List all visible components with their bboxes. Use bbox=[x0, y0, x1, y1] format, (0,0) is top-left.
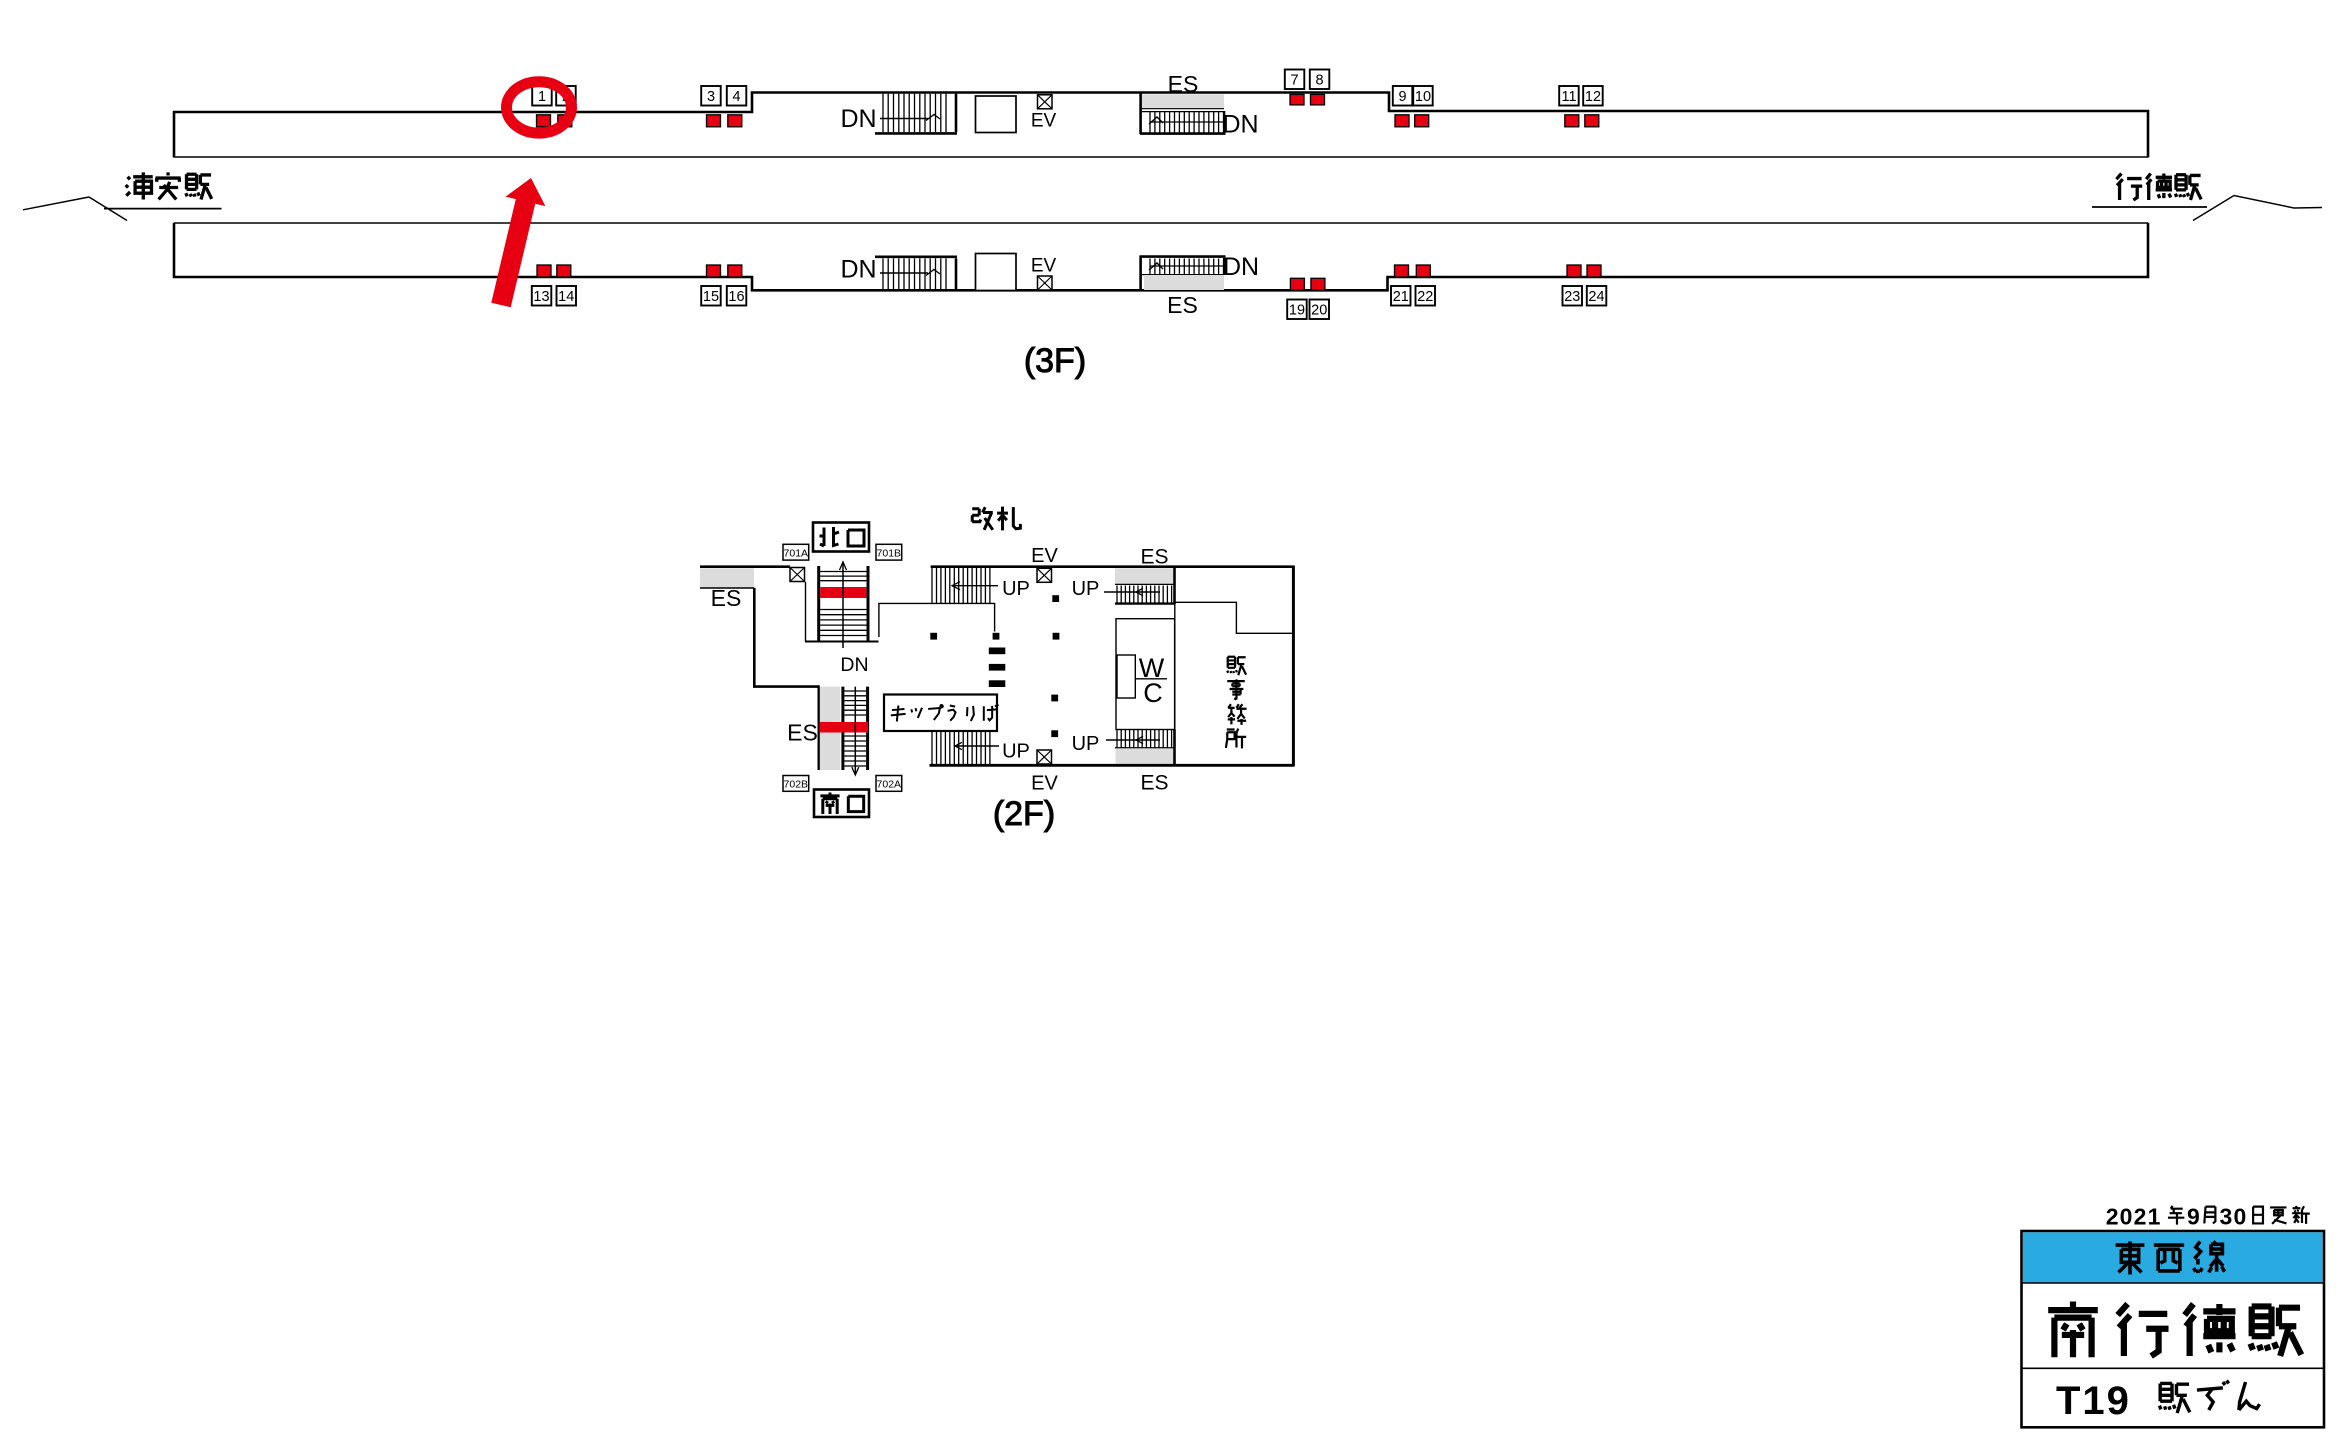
svg-text:702A: 702A bbox=[877, 779, 902, 791]
svg-text:EV: EV bbox=[1031, 773, 1058, 795]
svg-text:ES: ES bbox=[1167, 292, 1198, 318]
svg-text:DN: DN bbox=[1223, 253, 1259, 281]
svg-text:UP: UP bbox=[1002, 741, 1030, 763]
svg-text:EV: EV bbox=[1031, 111, 1057, 132]
svg-text:21: 21 bbox=[1393, 289, 1409, 305]
svg-text:ES: ES bbox=[1140, 546, 1168, 569]
svg-text:9: 9 bbox=[2187, 1204, 2200, 1230]
svg-text:22: 22 bbox=[1417, 289, 1433, 305]
svg-text:(3F): (3F) bbox=[1024, 342, 1086, 380]
svg-text:1: 1 bbox=[538, 89, 546, 105]
svg-text:8: 8 bbox=[1315, 72, 1323, 88]
svg-text:10: 10 bbox=[1415, 89, 1431, 105]
svg-text:ES: ES bbox=[711, 585, 742, 611]
svg-text:7: 7 bbox=[1290, 72, 1298, 88]
svg-text:EV: EV bbox=[1031, 545, 1058, 567]
svg-text:701A: 701A bbox=[784, 548, 809, 560]
svg-text:ES: ES bbox=[1140, 772, 1168, 795]
svg-text:9: 9 bbox=[1398, 89, 1406, 105]
svg-text:11: 11 bbox=[1561, 89, 1576, 105]
svg-text:4: 4 bbox=[732, 89, 740, 105]
svg-text:DN: DN bbox=[1222, 111, 1258, 139]
svg-text:19: 19 bbox=[1289, 302, 1305, 318]
svg-text:13: 13 bbox=[533, 289, 549, 305]
svg-text:DN: DN bbox=[840, 256, 876, 284]
svg-text:12: 12 bbox=[1585, 89, 1601, 105]
svg-text:15: 15 bbox=[703, 289, 719, 305]
svg-text:EV: EV bbox=[1031, 256, 1057, 277]
svg-text:ES: ES bbox=[1168, 71, 1199, 97]
svg-text:3: 3 bbox=[707, 89, 715, 105]
svg-text:DN: DN bbox=[840, 654, 868, 676]
svg-text:30: 30 bbox=[2220, 1204, 2248, 1230]
svg-text:701B: 701B bbox=[877, 548, 902, 560]
svg-text:UP: UP bbox=[1002, 578, 1030, 600]
svg-text:DN: DN bbox=[840, 105, 876, 133]
svg-text:20: 20 bbox=[1311, 302, 1327, 318]
svg-text:24: 24 bbox=[1588, 289, 1604, 305]
svg-text:2021: 2021 bbox=[2106, 1204, 2162, 1230]
svg-text:(2F): (2F) bbox=[993, 795, 1055, 833]
svg-text:23: 23 bbox=[1564, 289, 1580, 305]
svg-text:T19: T19 bbox=[2056, 1379, 2131, 1423]
svg-text:ES: ES bbox=[787, 720, 818, 746]
svg-text:14: 14 bbox=[558, 289, 574, 305]
svg-text:702B: 702B bbox=[784, 779, 809, 791]
svg-text:UP: UP bbox=[1072, 733, 1100, 755]
svg-text:C: C bbox=[1143, 678, 1163, 708]
svg-text:UP: UP bbox=[1072, 578, 1100, 600]
svg-text:16: 16 bbox=[728, 289, 744, 305]
